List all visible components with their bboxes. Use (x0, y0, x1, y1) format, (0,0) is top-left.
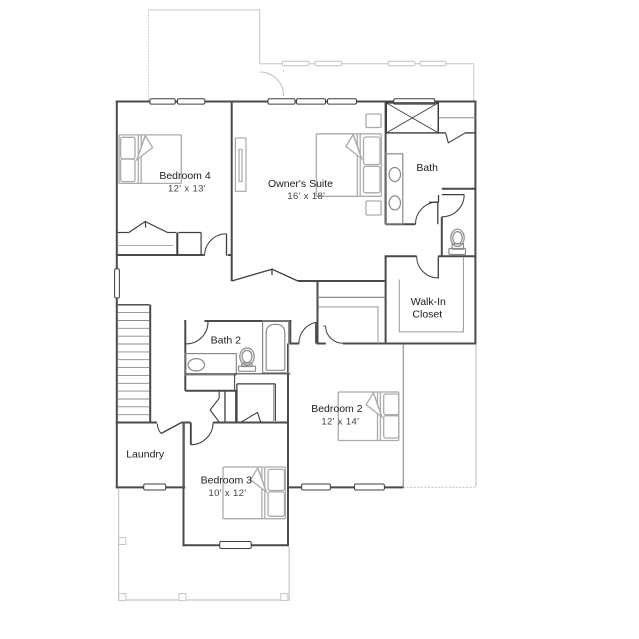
svg-text:Bedroom 2: Bedroom 2 (311, 403, 363, 415)
svg-text:Laundry: Laundry (126, 448, 165, 460)
svg-text:Owner's Suite: Owner's Suite (268, 178, 333, 190)
svg-text:Bedroom 4: Bedroom 4 (159, 170, 211, 182)
svg-text:Bath 2: Bath 2 (211, 335, 242, 347)
svg-text:Bath: Bath (416, 162, 438, 174)
svg-text:12' x 13': 12' x 13' (168, 183, 206, 194)
svg-text:Closet: Closet (412, 309, 442, 321)
svg-text:Walk-In: Walk-In (411, 296, 446, 308)
svg-text:16' x 18': 16' x 18' (287, 191, 325, 202)
svg-text:Bedroom 3: Bedroom 3 (201, 474, 253, 486)
svg-text:12' x 14': 12' x 14' (321, 416, 359, 427)
svg-text:10' x 12': 10' x 12' (209, 488, 247, 499)
